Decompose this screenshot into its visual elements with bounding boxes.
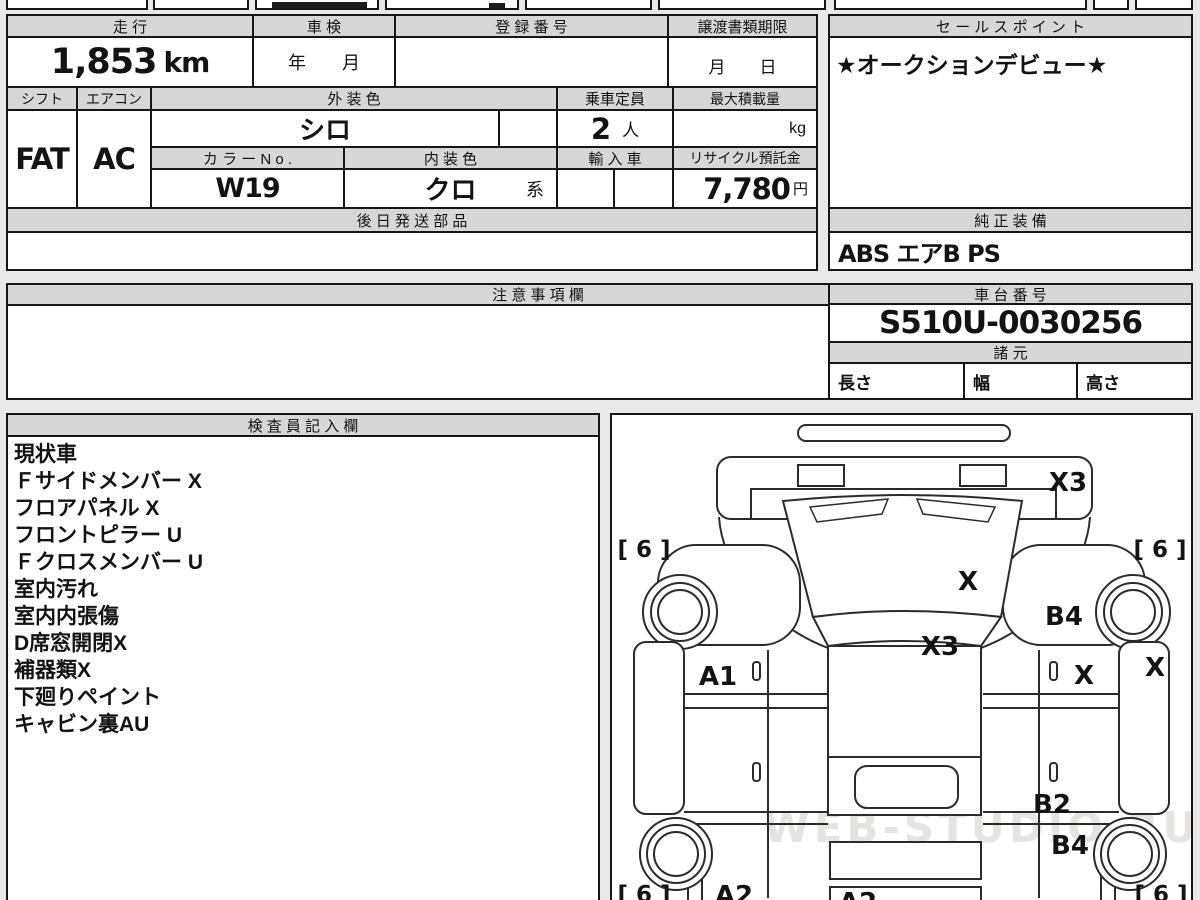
color-no-value: W19 <box>152 170 345 209</box>
damage-label-x3-cowl: X3 <box>921 632 959 662</box>
later-parts-header: 後 日 発 送 部 品 <box>8 209 816 233</box>
capacity-header: 乗車定員 <box>558 88 674 111</box>
inspector-notes: 現状車 Ｆサイドメンバー X フロアパネル X フロントピラー U Ｆクロスメン… <box>14 441 203 738</box>
mileage-header: 走 行 <box>8 16 254 38</box>
import-header: 輸 入 車 <box>558 148 674 170</box>
inspector-note: キャビン裏AU <box>14 711 203 738</box>
exterior-color-value: シロ <box>152 111 500 148</box>
interior-color-value: クロ 系 <box>345 170 558 209</box>
inspector-note: Ｆクロスメンバー U <box>14 549 203 576</box>
diagram-box: WEB-STUDIO.RU <box>610 413 1193 900</box>
handle <box>753 763 760 781</box>
handle <box>753 662 760 680</box>
cropped-cell <box>834 0 1087 10</box>
shaken-header: 車 検 <box>254 16 396 38</box>
inspector-note: 室内内張傷 <box>14 603 203 630</box>
max-load-header: 最大積載量 <box>674 88 816 111</box>
bed-wall-left <box>634 642 684 814</box>
damage-label-b2: B2 <box>1033 790 1071 820</box>
damage-label-a2-left: A2 <box>715 881 753 900</box>
recycle-unit: 円 <box>793 178 808 199</box>
mileage-number: 1,853 <box>51 42 157 82</box>
cropped-cell <box>385 0 519 10</box>
cab-roof <box>828 646 981 757</box>
damage-label-x3-front: X3 <box>1049 468 1087 498</box>
transfer-docs-value: 月 日 <box>669 38 816 88</box>
equipment-value: ABS エアB PS <box>830 233 1191 269</box>
damage-label-x-wall: X <box>1145 653 1165 683</box>
sales-point-header: セ ー ル ス ポ イ ン ト <box>830 16 1191 38</box>
later-parts-value <box>8 233 816 269</box>
cropped-cell <box>153 0 249 10</box>
wheel-front-right <box>1096 575 1170 649</box>
sales-point-value: ★オークションデビュー★ <box>830 38 1191 209</box>
wheel-front-left <box>643 575 717 649</box>
shift-value: FAT <box>8 111 78 209</box>
max-load-value: kg <box>674 111 816 148</box>
damage-label-b4-front: B4 <box>1045 602 1083 632</box>
inspector-note: Ｆサイドメンバー X <box>14 468 203 495</box>
height-cell: 高さ <box>1078 364 1191 398</box>
shaken-value: 年 月 <box>254 38 396 88</box>
interior-color-suffix: 系 <box>526 176 544 202</box>
transfer-docs-header: 譲渡書類期限 <box>669 16 816 38</box>
chassis-value: S510U-0030256 <box>830 305 1191 343</box>
recycle-value: 7,780 円 <box>674 170 816 209</box>
mileage-value: 1,853 km <box>8 38 254 88</box>
registration-header: 登 録 番 号 <box>396 16 669 38</box>
cowl-panel <box>813 611 1001 646</box>
cropped-text-fragment <box>489 3 505 8</box>
specs-header: 諸 元 <box>830 343 1191 364</box>
sales-point-box: セ ー ル ス ポ イ ン ト ★オークションデビュー★ 純 正 装 備 ABS… <box>828 14 1193 271</box>
interior-color-header: 内 装 色 <box>345 148 558 170</box>
windshield <box>783 495 1022 617</box>
vehicle-diagram: WEB-STUDIO.RU <box>612 415 1191 900</box>
front-lip <box>798 425 1010 441</box>
damage-label-x-windshield: X <box>958 567 978 597</box>
handle <box>1050 662 1057 680</box>
aircon-value: AC <box>78 111 152 209</box>
recycle-header: リサイクル預託金 <box>674 148 816 170</box>
cropped-cell <box>1093 0 1129 10</box>
damage-label-b4-rear: B4 <box>1051 831 1089 861</box>
wheel-rear-left <box>640 818 712 890</box>
color-no-header: カ ラ ー N o . <box>152 148 345 170</box>
inspector-box: 検 査 員 記 入 欄 現状車 Ｆサイドメンバー X フロアパネル X フロント… <box>6 413 600 900</box>
shift-header: シフト <box>8 88 78 111</box>
cropped-cell <box>1135 0 1193 10</box>
damage-label-x-bed: X <box>1074 661 1094 691</box>
registration-value <box>396 38 669 88</box>
exterior-color-extra <box>500 111 558 148</box>
exterior-color-header: 外 装 色 <box>152 88 558 111</box>
tread-label-rear-left: [ 6 ] <box>617 882 670 900</box>
handle <box>1050 763 1057 781</box>
inspector-note: フロントピラー U <box>14 522 203 549</box>
auction-sheet: 走 行 車 検 登 録 番 号 譲渡書類期限 1,853 km 年 月 月 日 … <box>0 0 1200 900</box>
import-value-2 <box>615 170 674 209</box>
inspector-header: 検 査 員 記 入 欄 <box>8 415 598 437</box>
length-cell: 長さ <box>830 364 965 398</box>
cropped-text-fragment <box>272 2 367 8</box>
cropped-cell <box>658 0 826 10</box>
capacity-number: 2 <box>591 112 610 146</box>
interior-color-text: クロ <box>424 170 476 207</box>
tread-label-rear-right: [ 6 ] <box>1134 882 1187 900</box>
tread-label-front-right: [ 6 ] <box>1133 537 1186 563</box>
capacity-unit: 人 <box>622 116 639 141</box>
wheel-rear-right <box>1094 818 1166 890</box>
damage-label-a1: A1 <box>699 662 737 692</box>
equipment-header: 純 正 装 備 <box>830 209 1191 233</box>
chassis-header: 車 台 番 号 <box>830 285 1191 305</box>
width-cell: 幅 <box>965 364 1078 398</box>
inspector-note: 現状車 <box>14 441 203 468</box>
recycle-number: 7,780 <box>703 172 790 206</box>
inspector-note: D席窓開閉X <box>14 630 203 657</box>
spec-table: 走 行 車 検 登 録 番 号 譲渡書類期限 1,853 km 年 月 月 日 … <box>6 14 818 271</box>
cropped-cell <box>6 0 148 10</box>
chassis-box: 車 台 番 号 S510U-0030256 諸 元 長さ 幅 高さ <box>828 283 1193 400</box>
inspector-note: フロアパネル X <box>14 495 203 522</box>
inspector-note: 下廻りペイント <box>14 684 203 711</box>
inspector-note: 補器類X <box>14 657 203 684</box>
tread-label-front-left: [ 6 ] <box>617 537 670 563</box>
cropped-cell <box>525 0 652 10</box>
aircon-header: エアコン <box>78 88 152 111</box>
import-value-1 <box>558 170 615 209</box>
mileage-unit: km <box>163 46 209 79</box>
capacity-value: 2 人 <box>558 111 674 148</box>
damage-label-a2-center: A2 <box>839 888 877 900</box>
cropped-cell <box>255 0 379 10</box>
inspector-note: 室内汚れ <box>14 576 203 603</box>
